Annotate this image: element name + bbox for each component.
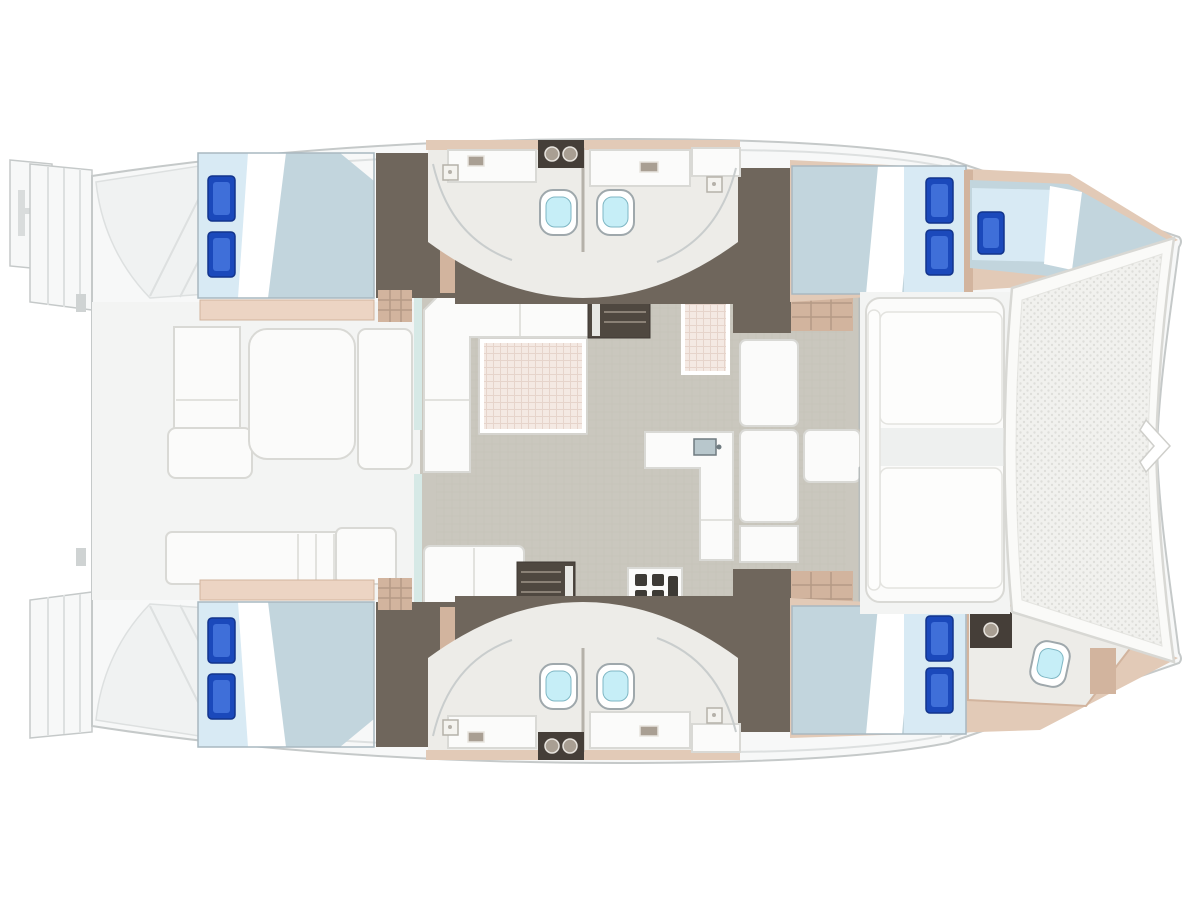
basin-icon [640, 162, 658, 172]
aft-cockpit [92, 302, 420, 600]
pillow [208, 618, 235, 663]
double-bed [198, 602, 374, 747]
cockpit-corner-seat [168, 428, 252, 478]
toilet [540, 664, 577, 709]
pillow [926, 230, 953, 275]
sink-unit [970, 612, 1012, 648]
cabin-steps [378, 578, 412, 610]
forward-cockpit-backrest [868, 310, 880, 590]
sink-unit [538, 732, 584, 760]
port-aft-cabin [198, 153, 458, 322]
deck-hatch-icon [443, 165, 458, 180]
pillow [926, 178, 953, 223]
cabinet [692, 724, 740, 752]
cabinet [692, 148, 740, 176]
double-bed [792, 166, 966, 294]
cockpit-aft-seat [336, 528, 396, 584]
cleat-icon [76, 294, 86, 312]
cabin-bench [200, 300, 374, 320]
port-heads [426, 140, 790, 304]
transom-platform-port [30, 164, 92, 310]
toilet [597, 664, 634, 709]
sink-unit [538, 140, 584, 168]
foredeck-walkway [878, 428, 1004, 466]
vanity [448, 716, 536, 748]
forward-ottoman [804, 430, 860, 482]
forward-seat [740, 340, 798, 426]
pillow [208, 232, 235, 277]
catamaran-floor-plan [0, 0, 1200, 900]
cleat-icon [76, 548, 86, 566]
deck-hatch-icon [707, 177, 722, 192]
vanity [448, 150, 536, 182]
pillow [978, 212, 1004, 254]
toilet [540, 190, 577, 235]
forward-cockpit-cushion [880, 468, 1002, 588]
cockpit-table [249, 329, 355, 459]
double-bed [792, 606, 966, 734]
sliding-door-glass [414, 474, 422, 612]
forward-cockpit-cushion [880, 312, 1002, 424]
stern-platforms [10, 160, 92, 738]
trampoline [1005, 238, 1175, 662]
deck-hatch-icon [707, 708, 722, 723]
forward-cabinet [740, 526, 798, 562]
forward-cockpit [860, 292, 1010, 614]
cabin-steps [378, 290, 412, 322]
starboard-aft-cabin [198, 578, 458, 747]
basin-icon [468, 156, 484, 166]
basin-icon [468, 732, 484, 742]
pillow [926, 616, 953, 661]
pillow [208, 176, 235, 221]
pillow [926, 668, 953, 713]
forward-seat [740, 430, 798, 522]
double-bed [198, 153, 374, 298]
cockpit-lounge-right [358, 329, 412, 469]
deck-hatch-icon [443, 720, 458, 735]
cabin-bench [200, 580, 374, 600]
head-locker [1090, 648, 1116, 694]
sliding-door-glass [414, 298, 422, 430]
salon-galley [414, 282, 860, 620]
starboard-heads [426, 596, 790, 760]
transom-platform-starboard [30, 592, 92, 738]
toilet [597, 190, 634, 235]
floor-plan-canvas [0, 0, 1200, 900]
basin-icon [640, 726, 658, 736]
galley-sink [694, 439, 716, 455]
pillow [208, 674, 235, 719]
